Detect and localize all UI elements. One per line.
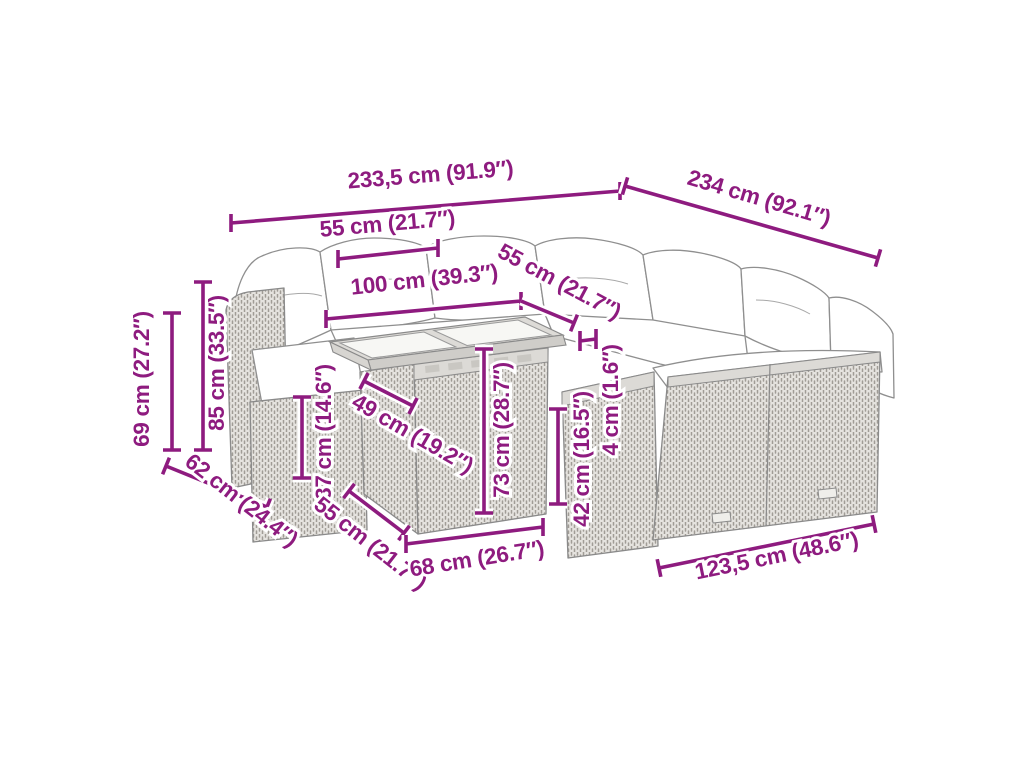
dim-label-right-sofa-length: 123,5 cm (48.6″) [693,527,861,585]
product-dimension-diagram: 233,5 cm (91.9″) 234 cm (92.1″) 55 cm (2… [0,0,1024,768]
dim-label-cushion-top-height: 42 cm (16.5″) [569,391,594,527]
dim-label-table-height: 73 cm (28.7″) [489,362,514,498]
panel-clip [818,488,837,499]
panel-clip [712,512,731,523]
diagram-canvas: 233,5 cm (91.9″) 234 cm (92.1″) 55 cm (2… [0,0,1024,768]
dim-label-armrest-height: 69 cm (27.2″) [129,311,154,447]
dim-label-backrest-height: 85 cm (33.5″) [204,295,229,431]
dim-label-table-top-thickness: 4 cm (1.6″) [598,344,623,455]
dim-line-armrest-height [163,313,181,450]
right-sofa-wing [653,352,880,540]
dim-label-overall-width-left: 233,5 cm (91.9″) [347,156,515,194]
dim-label-seat-height: 37 cm (14.6″) [311,364,336,500]
